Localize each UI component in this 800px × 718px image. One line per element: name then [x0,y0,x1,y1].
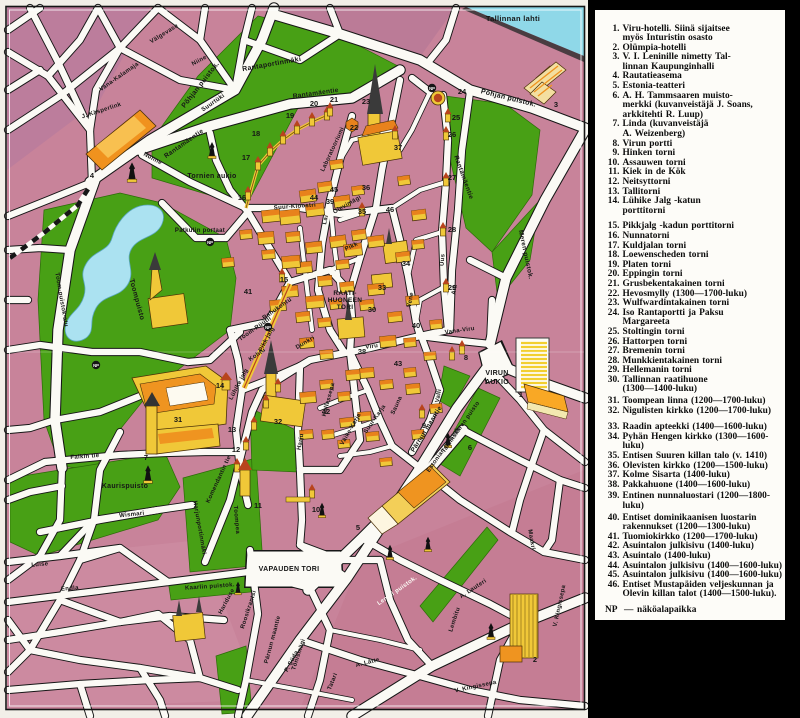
svg-text:33: 33 [378,283,386,292]
svg-text:31: 31 [174,415,182,424]
svg-text:36: 36 [362,183,370,192]
svg-text:26: 26 [448,130,456,139]
svg-text:RAATI-: RAATI- [333,290,356,297]
svg-text:6: 6 [468,443,472,452]
svg-text:34: 34 [402,259,411,268]
svg-text:30: 30 [368,305,376,314]
svg-text:37: 37 [394,143,402,152]
svg-text:1: 1 [519,390,523,399]
svg-text:46: 46 [386,205,394,214]
svg-text:21: 21 [330,95,338,104]
svg-text:5: 5 [356,523,360,532]
svg-text:VIRUN: VIRUN [485,370,508,377]
svg-text:12: 12 [232,445,240,454]
svg-text:39: 39 [326,197,334,206]
svg-text:23: 23 [362,97,370,106]
svg-text:3: 3 [554,100,558,109]
svg-text:43: 43 [394,359,402,368]
svg-text:14: 14 [216,381,225,390]
svg-text:20: 20 [310,99,318,108]
svg-text:28: 28 [448,225,456,234]
svg-text:TORI: TORI [337,304,354,311]
svg-text:NP: NP [265,325,271,330]
svg-text:18: 18 [252,129,260,138]
svg-text:24: 24 [458,87,467,96]
svg-text:10: 10 [312,505,320,514]
svg-text:41: 41 [244,287,252,296]
svg-text:32: 32 [274,417,282,426]
svg-text:NP: NP [93,363,99,368]
svg-text:AUKIO: AUKIO [485,379,509,386]
svg-text:45: 45 [330,185,338,194]
svg-text:13: 13 [228,425,236,434]
svg-text:HUONEEN: HUONEEN [328,297,363,304]
svg-text:8: 8 [464,353,468,362]
svg-text:40: 40 [412,321,420,330]
svg-text:7: 7 [144,453,148,462]
svg-text:19: 19 [286,111,294,120]
svg-text:22: 22 [350,123,358,132]
svg-text:15: 15 [280,275,288,284]
svg-text:29: 29 [448,283,456,292]
svg-text:25: 25 [452,113,460,122]
svg-text:17: 17 [242,153,250,162]
svg-text:9: 9 [422,421,426,430]
svg-text:11: 11 [254,501,262,510]
svg-text:44: 44 [310,193,319,202]
svg-text:Kaurispuisto: Kaurispuisto [102,483,148,490]
svg-text:NP: NP [429,86,435,91]
svg-text:NP: NP [207,240,213,245]
svg-text:16: 16 [238,193,246,202]
svg-text:Patkulin portaat: Patkulin portaat [175,228,225,234]
svg-text:42: 42 [322,407,330,416]
svg-text:VAPAUDEN TORI: VAPAUDEN TORI [259,566,320,573]
svg-text:2: 2 [533,655,537,664]
svg-text:35: 35 [358,207,366,216]
svg-text:Uus: Uus [439,253,446,266]
svg-text:27: 27 [448,173,456,182]
svg-text:Tornien aukio: Tornien aukio [187,173,236,180]
svg-text:Tallinnan lahti: Tallinnan lahti [486,14,540,23]
